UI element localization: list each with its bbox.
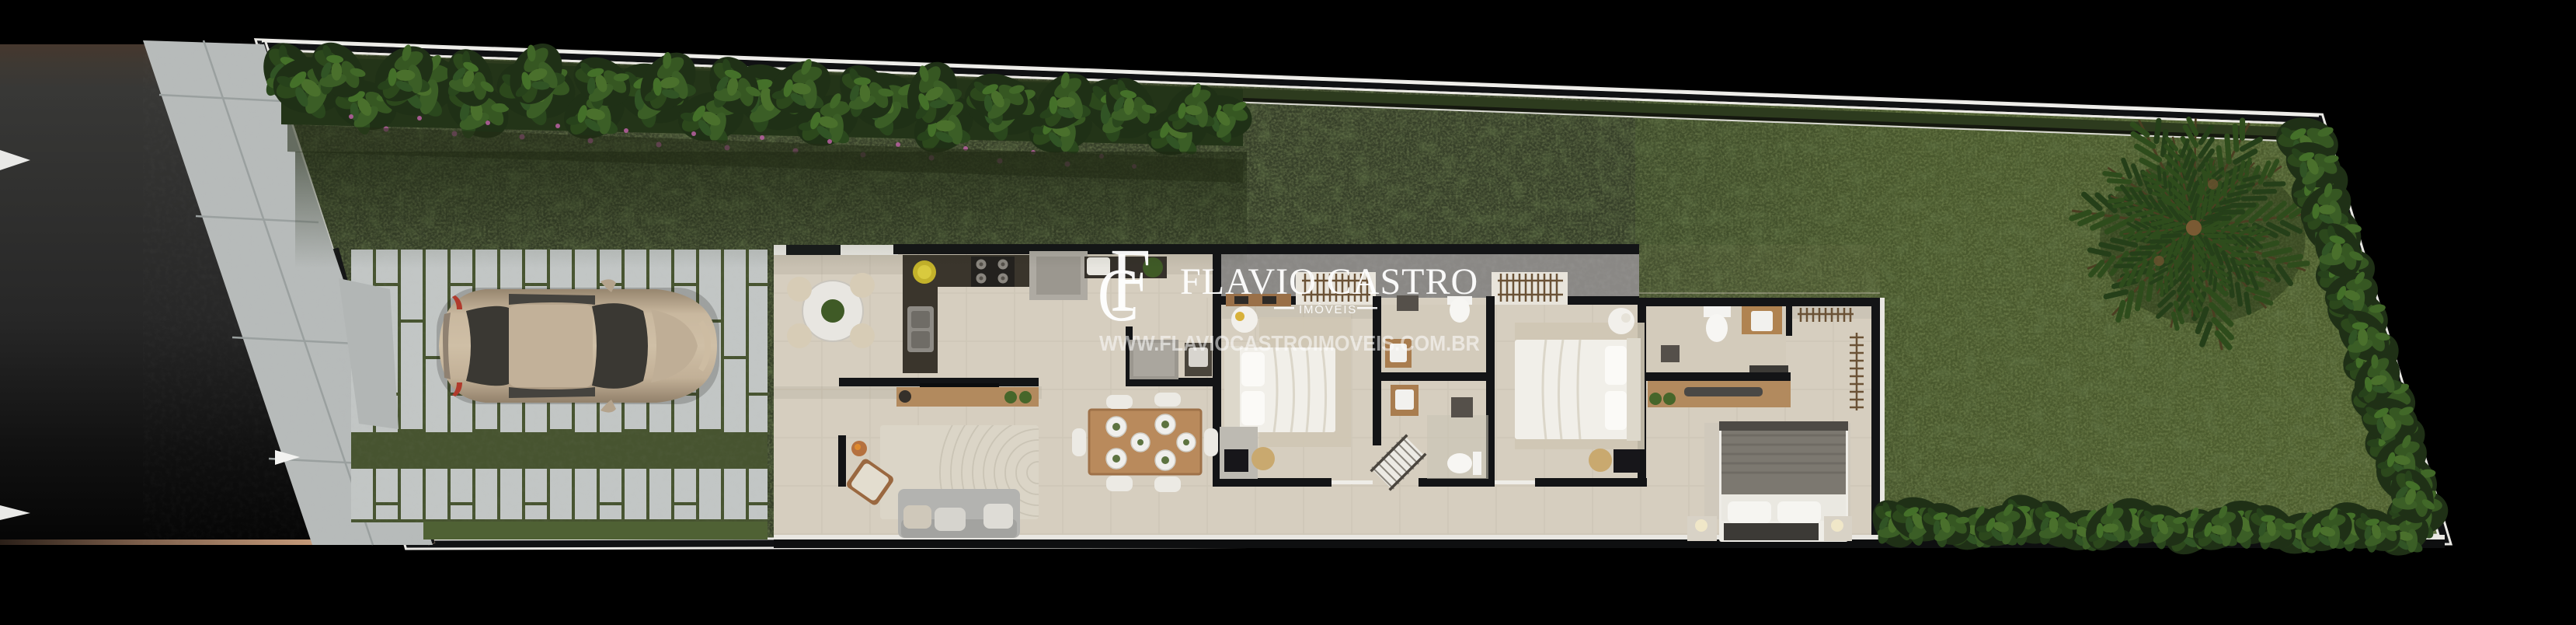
svg-text:FLAVIO CASTRO: FLAVIO CASTRO [1180, 261, 1478, 302]
svg-text:WWW.FLAVIOCASTROIMOVEIS.COM.BR: WWW.FLAVIOCASTROIMOVEIS.COM.BR [1099, 331, 1480, 355]
svg-text:F: F [1110, 230, 1150, 331]
svg-text:IMÓVEIS: IMÓVEIS [1299, 303, 1357, 316]
